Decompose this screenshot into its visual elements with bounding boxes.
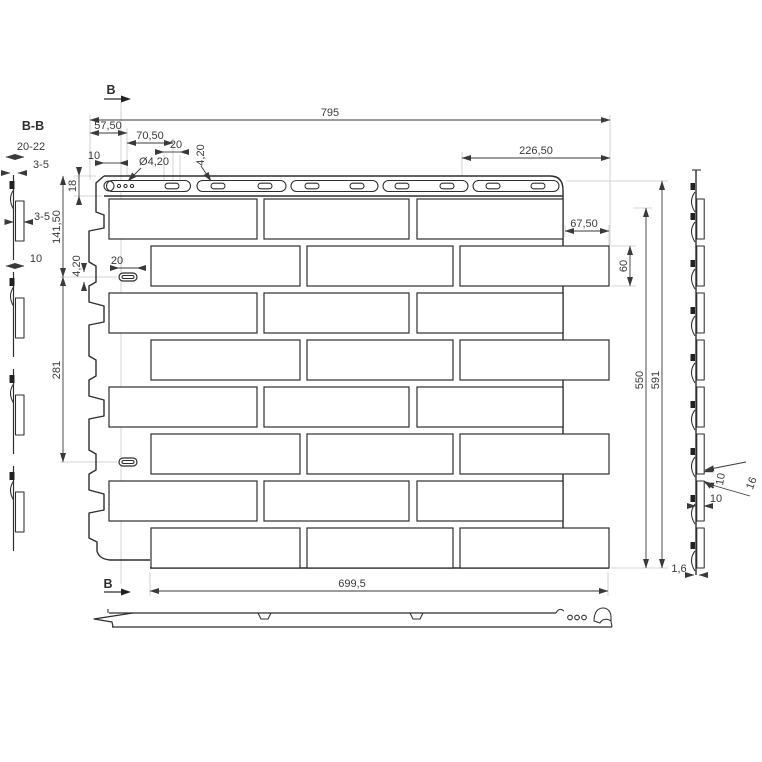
dim-depth: 10: [710, 493, 722, 505]
section-view-bb: B-B 20-22 3-5 3-5 10: [3, 119, 50, 551]
dim-bottom-width: 699,5: [338, 578, 366, 590]
leader-line: [128, 168, 141, 181]
hook-curve: [692, 192, 696, 212]
dim-strip-height: 18: [67, 180, 79, 192]
technical-drawing-page: B-B 20-22 3-5 3-5 10 795 57,50 70,50 20 …: [0, 0, 762, 762]
brick: [109, 199, 257, 239]
brick: [460, 434, 609, 474]
bottom-view: [94, 608, 612, 627]
dim-joint-gap: 10: [714, 472, 728, 486]
hook-detail: [691, 260, 696, 267]
hook-curve: [692, 410, 696, 430]
dim-to-left-slot: 141,50: [51, 210, 63, 244]
dim-line: [705, 462, 746, 470]
side-brick: [697, 293, 704, 333]
dim-body-height: 550: [634, 371, 646, 389]
brick: [151, 340, 300, 380]
brick: [417, 199, 563, 239]
brick: [417, 481, 563, 521]
bottom-right-edge: [611, 621, 612, 627]
dim-hole-diameter: Ø4,20: [139, 156, 169, 168]
dim-left-offset: 57,50: [94, 120, 122, 132]
hook-detail: [691, 542, 696, 549]
dim-left-slot-width: 4,20: [71, 255, 83, 276]
dim-overall-height: 591: [650, 371, 662, 389]
hook-curve: [692, 551, 696, 571]
bottom-notch: [410, 613, 423, 619]
brick: [109, 481, 257, 521]
side-dimensions: 10 16 10 1,6: [671, 462, 759, 575]
hook-curve: [692, 363, 696, 383]
brick: [307, 434, 453, 474]
side-brick: [697, 199, 704, 239]
side-brick: [697, 246, 704, 286]
hook-curve: [692, 457, 696, 477]
cut-arrow-icon: [121, 96, 131, 103]
hook-detail: [691, 183, 696, 190]
brick: [151, 528, 300, 568]
brick: [307, 340, 453, 380]
hook-curve: [692, 222, 696, 242]
dim-sheet-thickness: 1,6: [671, 563, 686, 575]
dim-section-thickness: 3-5: [33, 159, 49, 171]
cut-arrow-icon: [121, 589, 131, 596]
dim-section-width: 20-22: [17, 141, 45, 153]
hook-detail: [691, 495, 696, 502]
front-view: [89, 176, 609, 568]
brick-rows: [109, 199, 609, 568]
dim-overall-width: 795: [321, 107, 339, 119]
nail-strip-plate: [107, 181, 191, 192]
dim-section-relief: 3-5: [34, 211, 50, 223]
dim-step: 16: [744, 476, 759, 492]
leader-line: [201, 166, 211, 181]
dim-slot-width-top: 4,20: [195, 144, 207, 165]
hook-detail: [691, 307, 696, 314]
brick: [264, 293, 409, 333]
dim-left-slot-length: 20: [111, 255, 123, 267]
nail-strip-plate: [291, 181, 378, 192]
brick: [264, 387, 409, 427]
dim-slot-length-top: 20: [170, 139, 182, 151]
bottom-bump: [575, 615, 580, 620]
side-view: [691, 170, 705, 575]
side-bricks: [697, 199, 704, 568]
side-brick: [697, 528, 704, 568]
section-brick: [16, 298, 25, 338]
hook-detail: [691, 448, 696, 455]
brick: [460, 246, 609, 286]
brick: [109, 387, 257, 427]
side-brick: [697, 340, 704, 380]
hook-curve: [692, 504, 696, 524]
cut-marker-bottom: B: [103, 577, 112, 591]
section-hook: [10, 181, 15, 189]
dim-brick-height: 60: [618, 260, 630, 272]
bottom-bump: [568, 615, 573, 620]
hook-curve: [692, 269, 696, 289]
brick: [460, 528, 609, 568]
brick: [307, 528, 453, 568]
side-hooks: [691, 183, 696, 571]
nail-strip-plate: [383, 181, 468, 192]
cut-marker-top: B: [106, 83, 115, 97]
brick: [307, 246, 453, 286]
bottom-end-hook: [594, 608, 611, 623]
facade-panel-drawing: B-B 20-22 3-5 3-5 10 795 57,50 70,50 20 …: [0, 0, 762, 762]
nail-strip-plate: [197, 181, 286, 192]
brick: [460, 340, 609, 380]
section-label: B-B: [22, 119, 44, 133]
side-brick: [697, 387, 704, 427]
section-brick: [16, 201, 25, 241]
bottom-notch: [258, 613, 271, 619]
brick: [417, 387, 563, 427]
brick: [264, 199, 409, 239]
section-hook: [10, 472, 15, 480]
hook-detail: [691, 354, 696, 361]
bottom-bump: [582, 615, 587, 620]
dim-to-first-slot: 70,50: [136, 130, 164, 142]
dim-brick-offset: 67,50: [570, 218, 598, 230]
side-brick: [697, 481, 704, 521]
bottom-right-curl: [556, 609, 564, 613]
brick: [109, 293, 257, 333]
dim-section-flange: 10: [30, 253, 42, 265]
section-brick: [16, 395, 25, 435]
brick: [151, 434, 300, 474]
hook-curve: [692, 316, 696, 336]
hook-detail: [691, 401, 696, 408]
section-hook: [10, 375, 15, 383]
dim-edge-to-hole: 10: [88, 150, 100, 162]
brick: [417, 293, 563, 333]
dim-between-slots: 281: [51, 361, 63, 379]
section-brick: [16, 492, 25, 532]
hook-detail: [691, 213, 696, 220]
side-brick: [697, 434, 704, 474]
section-profile: [10, 175, 25, 551]
dim-right-span: 226,50: [519, 145, 553, 157]
bottom-left-point: [94, 613, 133, 627]
brick: [151, 246, 300, 286]
section-hook: [10, 278, 15, 286]
brick: [264, 481, 409, 521]
